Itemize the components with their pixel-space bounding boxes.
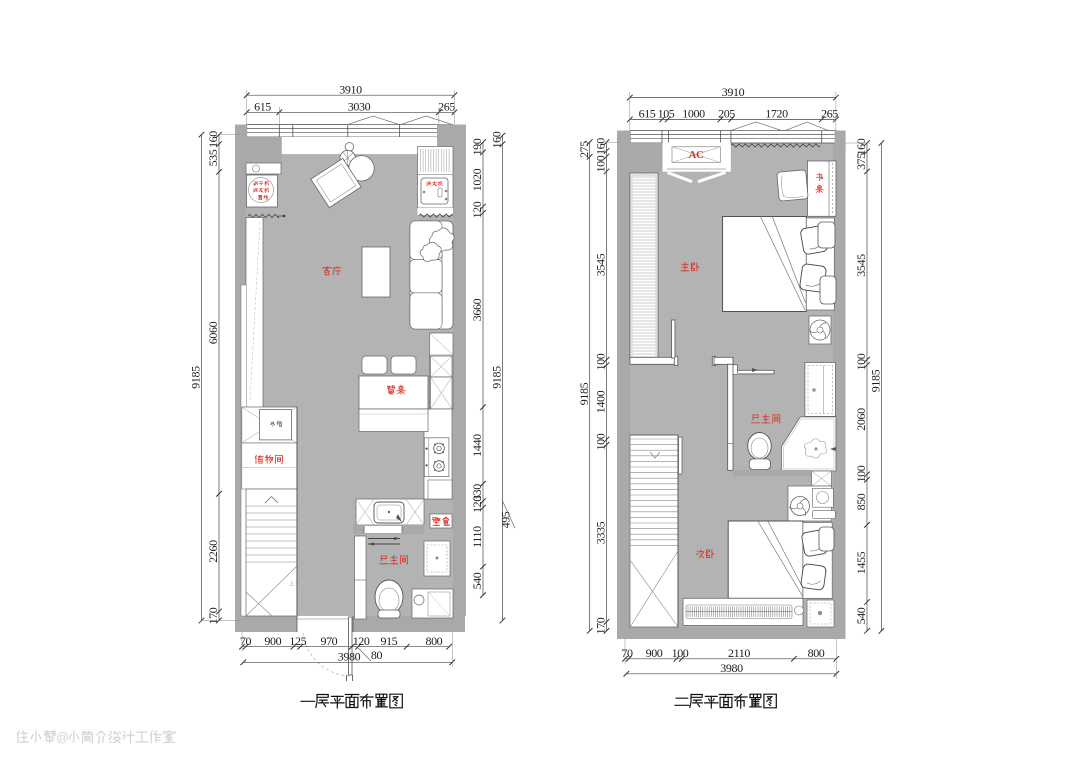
svg-text:125: 125 bbox=[289, 634, 306, 648]
svg-text:2260: 2260 bbox=[206, 540, 220, 563]
svg-text:9185: 9185 bbox=[869, 369, 883, 392]
svg-text:80: 80 bbox=[371, 648, 383, 662]
svg-text:540: 540 bbox=[470, 572, 484, 589]
svg-text:1000: 1000 bbox=[682, 107, 705, 121]
svg-text:100: 100 bbox=[854, 353, 868, 370]
svg-text:1020: 1020 bbox=[470, 168, 484, 191]
svg-text:100: 100 bbox=[594, 155, 608, 172]
svg-text:105: 105 bbox=[658, 107, 675, 121]
svg-text:160: 160 bbox=[594, 138, 608, 155]
svg-text:70: 70 bbox=[621, 646, 633, 660]
svg-text:1400: 1400 bbox=[594, 390, 608, 413]
svg-text:1110: 1110 bbox=[470, 526, 484, 548]
svg-text:915: 915 bbox=[380, 634, 397, 648]
svg-text:540: 540 bbox=[854, 607, 868, 624]
svg-text:120: 120 bbox=[470, 201, 484, 218]
svg-text:2060: 2060 bbox=[854, 408, 868, 431]
svg-text:970: 970 bbox=[320, 634, 337, 648]
svg-text:1455: 1455 bbox=[854, 551, 868, 574]
svg-text:800: 800 bbox=[425, 634, 442, 648]
svg-text:3910: 3910 bbox=[722, 85, 745, 99]
svg-text:1720: 1720 bbox=[765, 107, 788, 121]
svg-text:100: 100 bbox=[854, 465, 868, 482]
svg-text:615: 615 bbox=[639, 107, 656, 121]
svg-text:9185: 9185 bbox=[577, 382, 591, 405]
svg-text:3335: 3335 bbox=[594, 521, 608, 544]
svg-text:3545: 3545 bbox=[854, 254, 868, 277]
svg-text:9185: 9185 bbox=[189, 366, 203, 389]
svg-text:6060: 6060 bbox=[206, 321, 220, 344]
svg-text:170: 170 bbox=[206, 607, 220, 624]
svg-text:AC: AC bbox=[689, 149, 704, 161]
svg-text:3545: 3545 bbox=[594, 253, 608, 276]
svg-text:275: 275 bbox=[577, 141, 591, 158]
svg-text:120: 120 bbox=[470, 496, 484, 513]
svg-text:120: 120 bbox=[353, 634, 370, 648]
svg-text:100: 100 bbox=[672, 646, 689, 660]
svg-text:70: 70 bbox=[240, 634, 252, 648]
svg-text:3980: 3980 bbox=[338, 650, 361, 664]
svg-text:3980: 3980 bbox=[720, 661, 743, 675]
svg-text:100: 100 bbox=[594, 433, 608, 450]
svg-text:9185: 9185 bbox=[490, 366, 504, 389]
svg-text:375: 375 bbox=[854, 153, 868, 170]
svg-text:3910: 3910 bbox=[339, 82, 362, 96]
svg-text:160: 160 bbox=[206, 131, 220, 148]
svg-text:265: 265 bbox=[438, 100, 455, 114]
svg-text:160: 160 bbox=[490, 131, 504, 148]
svg-text:850: 850 bbox=[854, 493, 868, 510]
svg-text:900: 900 bbox=[264, 634, 281, 648]
svg-text:535: 535 bbox=[206, 149, 220, 166]
svg-text:800: 800 bbox=[808, 646, 825, 660]
svg-text:495: 495 bbox=[499, 511, 513, 528]
svg-text:170: 170 bbox=[594, 617, 608, 634]
svg-text:3660: 3660 bbox=[470, 298, 484, 321]
svg-text:@: @ bbox=[56, 731, 69, 745]
svg-text:2110: 2110 bbox=[728, 646, 750, 660]
svg-text:205: 205 bbox=[718, 107, 735, 121]
svg-text:160: 160 bbox=[854, 138, 868, 155]
svg-text:900: 900 bbox=[646, 646, 663, 660]
svg-text:1440: 1440 bbox=[470, 434, 484, 457]
svg-text:190: 190 bbox=[470, 138, 484, 155]
svg-text:100: 100 bbox=[594, 353, 608, 370]
svg-text:615: 615 bbox=[254, 100, 271, 114]
svg-text:3030: 3030 bbox=[348, 100, 371, 114]
